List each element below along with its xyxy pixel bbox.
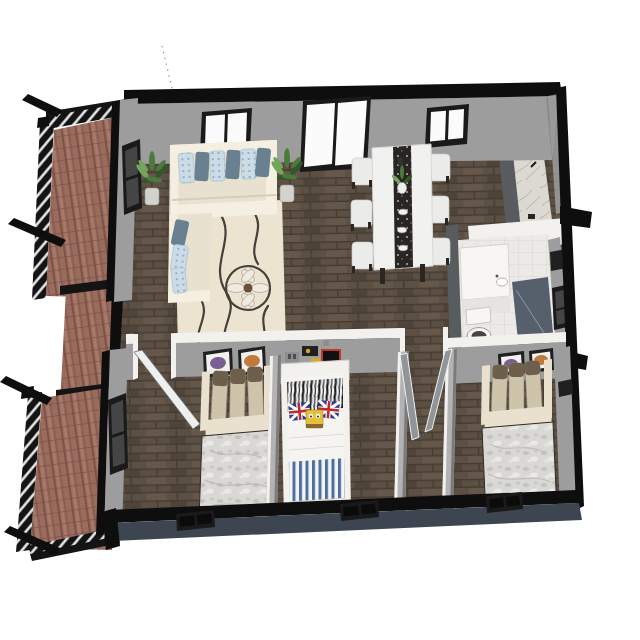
door-pane	[335, 101, 367, 166]
bed-pillows	[211, 367, 264, 422]
table-leg	[380, 268, 385, 284]
vanity-counter	[460, 244, 510, 300]
wall-cap	[126, 334, 133, 345]
floor-plan-render	[0, 0, 640, 640]
kitchen-item	[528, 214, 535, 219]
toilet-tank	[466, 307, 491, 325]
kids-bed	[281, 360, 351, 520]
window-pane	[430, 111, 446, 142]
dining-area	[351, 144, 450, 284]
wall-item-icon	[558, 379, 573, 397]
window-pane	[205, 115, 225, 147]
faucet-icon	[496, 275, 499, 278]
window-pane	[448, 109, 464, 140]
vase-icon	[398, 183, 407, 194]
wall-face	[126, 344, 133, 380]
window-pane	[111, 400, 124, 435]
table-leg	[420, 264, 425, 282]
window-pane	[126, 177, 139, 208]
door-pane	[304, 103, 335, 167]
window-pane	[112, 434, 125, 467]
window-pane	[125, 146, 138, 178]
door-jamb	[171, 333, 176, 379]
window-pane	[227, 113, 247, 145]
railing-corner-post	[21, 386, 34, 399]
door-jamb	[133, 334, 138, 380]
bed-pillows	[491, 361, 542, 414]
table-item	[398, 158, 403, 165]
floor-plan-svg	[0, 0, 640, 640]
sink-icon	[497, 278, 508, 286]
plush-toy-icon	[306, 410, 323, 428]
